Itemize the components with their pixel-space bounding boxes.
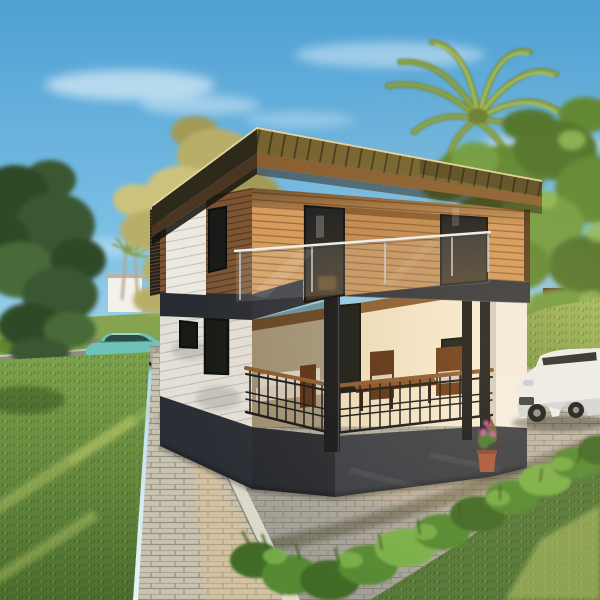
architectural-render: [0, 0, 600, 600]
